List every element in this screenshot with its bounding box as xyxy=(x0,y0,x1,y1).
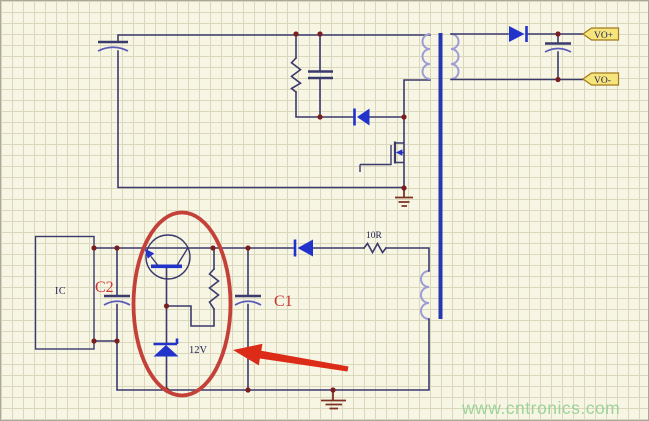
schematic-canvas: VO+ VO- IC C2 12V xyxy=(0,0,649,421)
junction-dot xyxy=(293,31,298,36)
mosfet-gate xyxy=(360,145,391,172)
aux-winding xyxy=(421,271,429,319)
junction-dots xyxy=(91,31,560,392)
ground-icon xyxy=(395,188,413,206)
junction-dot xyxy=(91,245,96,250)
junction-dot xyxy=(401,185,406,190)
bias-supply-wires xyxy=(94,248,429,390)
junction-dot xyxy=(245,387,250,392)
primary-drain-wire xyxy=(404,80,430,188)
net-flag-vo-minus-label: VO- xyxy=(594,76,611,86)
input-electrolytic-capacitor xyxy=(98,42,128,51)
junction-dot xyxy=(210,245,215,250)
wire xyxy=(451,34,583,80)
junction-dot xyxy=(164,303,169,308)
bias-resistor xyxy=(210,269,219,309)
wire xyxy=(296,34,404,117)
transformer xyxy=(421,33,459,319)
junction-dot xyxy=(317,31,322,36)
feedback-diode xyxy=(295,240,313,257)
c2-label: C2 xyxy=(95,279,114,296)
primary-winding xyxy=(423,34,430,79)
secondary-winding xyxy=(451,34,459,79)
transistor-body xyxy=(146,235,190,279)
ground-icon xyxy=(321,390,346,409)
snubber-diode xyxy=(357,109,370,126)
junction-dot xyxy=(91,338,96,343)
capacitor-curved-plate xyxy=(98,47,128,51)
n-mosfet xyxy=(360,142,404,173)
zener-diode-12v: 12V xyxy=(154,339,208,357)
output-rectifier-diode xyxy=(509,26,525,42)
transistor-emitter xyxy=(151,257,158,266)
junction-dot xyxy=(330,387,335,392)
resistor-10r-label: 10R xyxy=(366,231,383,241)
resistor-10r: 10R xyxy=(364,231,386,253)
junction-dot xyxy=(555,77,560,82)
watermark: www.cntronics.com xyxy=(461,398,620,418)
resistor-10r-zigzag xyxy=(364,244,386,253)
zener-triangle xyxy=(154,345,179,357)
ic-label: IC xyxy=(55,286,66,297)
snubber-network xyxy=(292,34,405,126)
ground-symbol-secondary-circuit xyxy=(321,390,346,409)
mosfet-arrow xyxy=(396,149,403,155)
zener-cathode-bar xyxy=(154,339,178,345)
zener-voltage-label: 12V xyxy=(189,345,208,356)
circuit-schematic: VO+ VO- IC C2 12V xyxy=(1,1,649,421)
output-section: VO+ VO- xyxy=(451,26,619,86)
red-annotation-arrow xyxy=(233,344,349,372)
capacitor-c2: C2 xyxy=(95,279,130,305)
junction-dot xyxy=(114,245,119,250)
snubber-resistor xyxy=(292,58,301,92)
junction-dot xyxy=(401,114,406,119)
feedback-diode-triangle xyxy=(298,240,314,257)
ic-block: IC xyxy=(36,237,95,350)
junction-dot xyxy=(114,338,119,343)
net-flag-vo-plus-label: VO+ xyxy=(594,31,613,41)
junction-dot xyxy=(317,114,322,119)
junction-dot xyxy=(555,31,560,36)
c1-label: C1 xyxy=(274,293,293,310)
ground-symbol-primary xyxy=(395,188,413,206)
wire xyxy=(94,248,429,390)
junction-dot xyxy=(245,245,250,250)
capacitor-c1: C1 xyxy=(235,293,293,310)
transistor-collector xyxy=(177,249,188,266)
